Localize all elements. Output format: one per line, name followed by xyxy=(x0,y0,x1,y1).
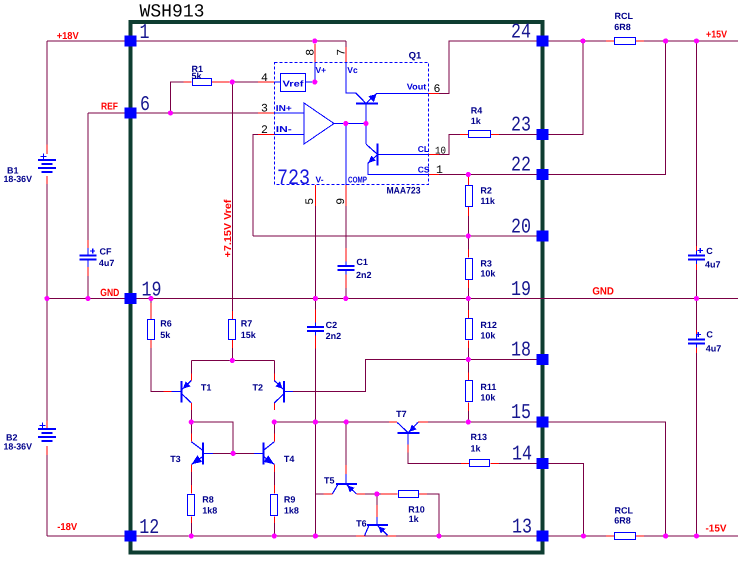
svg-text:723: 723 xyxy=(277,166,310,191)
svg-text:5k: 5k xyxy=(192,71,203,81)
svg-text:15k: 15k xyxy=(241,330,257,340)
svg-text:IN+: IN+ xyxy=(276,103,292,113)
svg-text:CL: CL xyxy=(418,144,429,154)
svg-text:C: C xyxy=(706,246,713,256)
svg-text:IN-: IN- xyxy=(276,124,292,134)
svg-text:R10: R10 xyxy=(408,505,425,515)
svg-text:2: 2 xyxy=(261,124,268,137)
svg-text:C1: C1 xyxy=(356,257,368,267)
svg-text:CS: CS xyxy=(418,164,430,174)
svg-text:R2: R2 xyxy=(480,186,492,196)
svg-text:T7: T7 xyxy=(396,409,407,419)
svg-text:24: 24 xyxy=(511,22,531,45)
svg-text:1k: 1k xyxy=(409,514,420,524)
svg-text:4u7: 4u7 xyxy=(705,260,721,270)
svg-text:R11: R11 xyxy=(480,382,496,392)
svg-text:WSH913: WSH913 xyxy=(140,2,205,23)
svg-text:R3: R3 xyxy=(480,258,492,268)
svg-text:19: 19 xyxy=(511,279,531,302)
svg-text:1k8: 1k8 xyxy=(202,506,217,516)
svg-text:3: 3 xyxy=(261,103,268,116)
svg-text:6R8: 6R8 xyxy=(614,516,631,526)
svg-text:T2: T2 xyxy=(253,383,264,393)
svg-text:1: 1 xyxy=(140,22,150,45)
svg-text:20: 20 xyxy=(511,217,531,240)
svg-text:15: 15 xyxy=(511,402,531,425)
svg-text:REF: REF xyxy=(101,102,118,113)
svg-text:14: 14 xyxy=(512,444,532,467)
svg-text:1k: 1k xyxy=(471,116,482,126)
svg-text:MAA723: MAA723 xyxy=(387,186,421,197)
svg-text:12: 12 xyxy=(139,517,159,540)
svg-text:Vref: Vref xyxy=(283,79,304,89)
svg-text:10: 10 xyxy=(435,147,446,158)
svg-text:T5: T5 xyxy=(324,476,335,486)
svg-text:T1: T1 xyxy=(201,383,212,393)
svg-text:4u7: 4u7 xyxy=(706,344,722,354)
svg-text:-15V: -15V xyxy=(706,524,727,535)
svg-text:RCL: RCL xyxy=(615,506,634,516)
svg-text:R9: R9 xyxy=(284,495,296,505)
svg-text:23: 23 xyxy=(511,115,531,138)
svg-text:11k: 11k xyxy=(480,196,496,206)
svg-text:+7.15V Vref: +7.15V Vref xyxy=(223,199,234,258)
svg-text:GND: GND xyxy=(592,286,614,298)
svg-text:R4: R4 xyxy=(471,106,483,116)
svg-text:4: 4 xyxy=(261,72,268,85)
svg-text:9: 9 xyxy=(335,198,348,205)
svg-text:GND: GND xyxy=(100,287,119,299)
svg-text:19: 19 xyxy=(142,280,162,303)
svg-text:Vout: Vout xyxy=(407,82,427,92)
svg-text:5k: 5k xyxy=(160,330,171,340)
svg-text:R12: R12 xyxy=(480,320,497,330)
svg-text:6: 6 xyxy=(140,94,150,117)
svg-text:10k: 10k xyxy=(480,330,496,340)
svg-text:Q1: Q1 xyxy=(409,51,422,62)
svg-text:1: 1 xyxy=(436,164,443,177)
svg-text:+18V: +18V xyxy=(57,31,79,42)
svg-text:10k: 10k xyxy=(480,392,496,402)
svg-text:2n2: 2n2 xyxy=(326,331,342,341)
svg-text:R7: R7 xyxy=(241,319,253,329)
svg-text:R13: R13 xyxy=(471,432,488,442)
svg-text:1k: 1k xyxy=(471,444,482,454)
svg-text:18: 18 xyxy=(511,340,531,363)
svg-text:C: C xyxy=(706,330,713,340)
svg-text:COMP: COMP xyxy=(348,174,367,184)
svg-text:5: 5 xyxy=(304,198,317,205)
svg-text:T6: T6 xyxy=(356,518,367,528)
svg-text:T4: T4 xyxy=(284,454,295,464)
svg-text:RCL: RCL xyxy=(615,11,634,21)
svg-text:R8: R8 xyxy=(202,495,214,505)
svg-text:18-36V: 18-36V xyxy=(4,441,33,451)
svg-text:R6: R6 xyxy=(160,319,172,329)
svg-text:4u7: 4u7 xyxy=(99,258,115,268)
svg-text:18-36V: 18-36V xyxy=(4,174,33,184)
svg-text:T3: T3 xyxy=(170,454,181,464)
svg-text:7: 7 xyxy=(335,49,348,56)
svg-text:C2: C2 xyxy=(326,320,338,330)
svg-text:+15V: +15V xyxy=(706,30,727,41)
svg-text:CF: CF xyxy=(100,247,112,257)
svg-text:Vc: Vc xyxy=(347,65,358,75)
svg-text:V+: V+ xyxy=(316,65,327,75)
svg-text:6R8: 6R8 xyxy=(614,22,631,32)
svg-text:-18V: -18V xyxy=(57,522,77,533)
svg-text:8: 8 xyxy=(304,49,317,56)
svg-text:22: 22 xyxy=(511,155,531,178)
svg-text:6: 6 xyxy=(434,83,441,96)
svg-text:10k: 10k xyxy=(480,269,496,279)
svg-text:2n2: 2n2 xyxy=(356,270,372,280)
svg-text:1k8: 1k8 xyxy=(284,506,299,516)
svg-text:V-: V- xyxy=(316,174,324,184)
svg-text:13: 13 xyxy=(512,517,532,540)
